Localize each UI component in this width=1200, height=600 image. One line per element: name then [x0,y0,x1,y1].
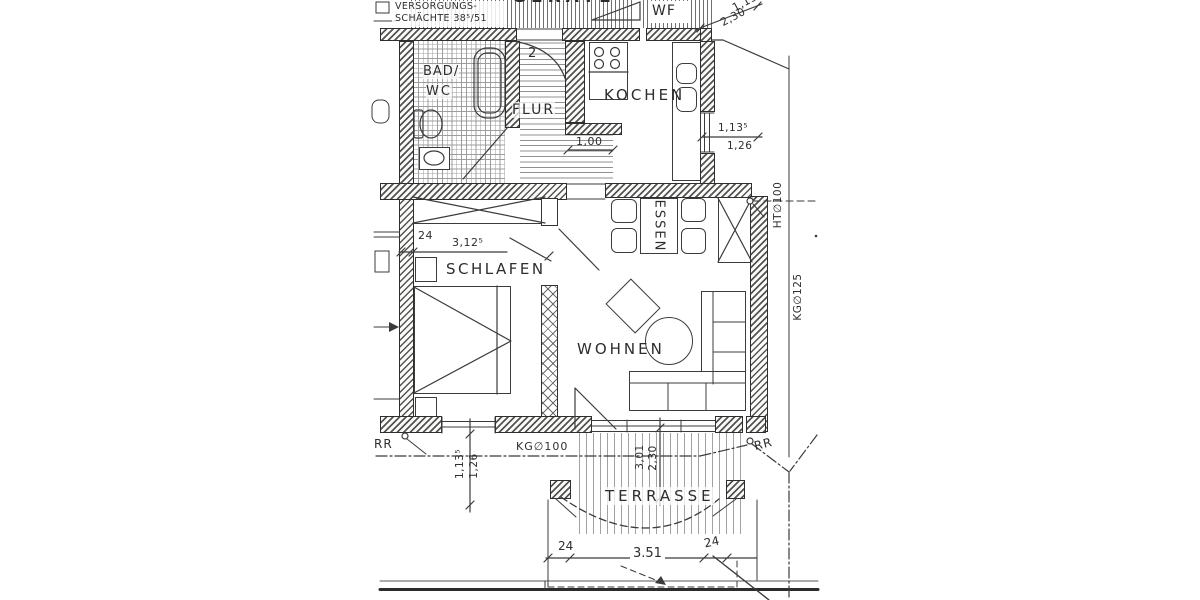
dim-terrace-post-left: 24 [558,539,573,553]
room-label-wohnen: WOHNEN [577,340,665,358]
floor-plan-canvas: GERÄTE VERSORGUNGS- SCHÄCHTE 38⁵/51 WF B… [0,0,1200,600]
room-label-schlafen: SCHLAFEN [446,260,546,278]
plan-linework [0,0,1200,600]
room-label-terrasse: TERRASSE [605,487,715,505]
dim-schlafen-window-raw: 1,13⁵ [454,449,466,479]
room-label-wf: WF [652,3,676,19]
pipe-label-kg125: KG∅125 [792,273,804,320]
room-label-kochen: KOCHEN [604,86,685,104]
dim-schlafen-offset: 24 [418,229,433,242]
dim-terrace-door-fin: 2,30 [647,445,659,470]
shaft-label-line1: VERSORGUNGS- [395,1,477,12]
door-number: 2 [528,46,536,61]
dim-kochen-window-fin: 1,26 [727,140,752,152]
dim-schlafen-width: 3,12⁵ [452,236,483,249]
pipe-label-rr-left: RR [374,437,393,451]
dim-flur-opening: 1,00 [576,135,603,148]
room-label-bad-2: WC [426,84,452,99]
room-label-essen: ESSEN [652,200,667,253]
dim-kochen-window-raw: 1,13⁵ [718,122,748,134]
pipe-label-kg100: KG∅100 [516,440,568,453]
dim-terrace-door-raw: 3,01 [634,444,646,469]
pipe-label-ht100: HT∅100 [772,182,784,229]
dim-schlafen-window-fin: 1,26 [468,453,480,478]
shaft-label-line2: SCHÄCHTE 38⁵/51 [395,13,487,24]
room-label-bad-1: BAD/ [423,64,459,79]
room-label-flur: FLUR [512,102,555,118]
dim-terrace-width: 3.51 [630,546,665,561]
clipped-top-text: GERÄTE [512,0,616,7]
